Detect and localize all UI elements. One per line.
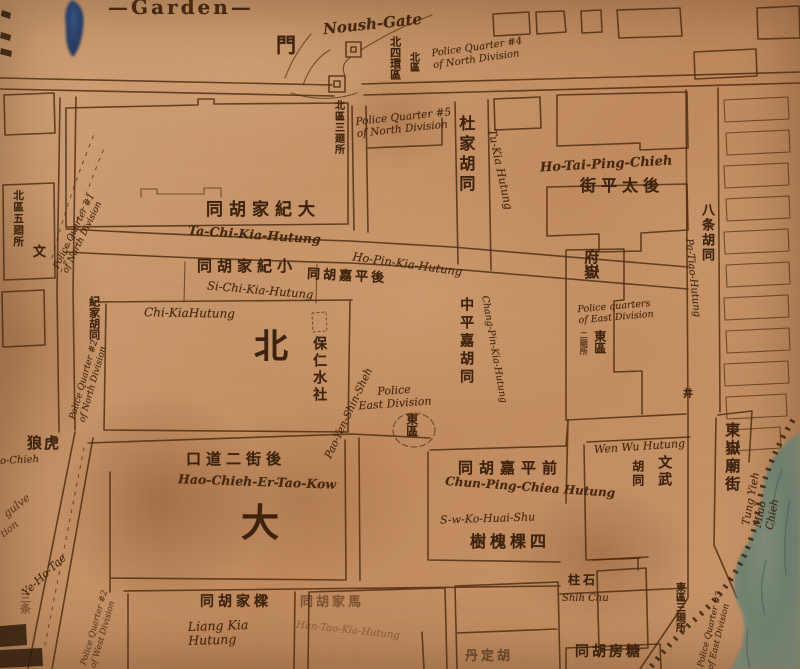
- label-chunping-cjk: 同胡嘉平前: [458, 460, 563, 477]
- label-faded-hutung-cjk: 同胡家馬: [300, 596, 364, 611]
- label-liangkia-hutung: Liang Kia Hutung: [188, 618, 250, 649]
- label-north-big-char: 北: [254, 328, 288, 367]
- label-sichi-cjk: 同胡家紀小: [197, 258, 297, 275]
- label-north-div-box: 北四環區: [388, 36, 401, 80]
- label-santiao-cjk: 三条: [18, 592, 31, 614]
- label-haochieh-cjk: 口道二街後: [186, 451, 286, 468]
- label-shihchu-cjk: 柱石: [568, 574, 598, 588]
- label-tangfang-cjk: 同胡房糖: [575, 644, 643, 660]
- label-shihchu: Shih Chu: [562, 593, 609, 605]
- street-network: [0, 0, 800, 669]
- label-paojen-cjk: 保仁水社: [311, 336, 327, 404]
- label-north-district-5: 北區五廻所: [12, 190, 24, 248]
- label-east-district-3: 東區三廻所: [673, 582, 685, 632]
- label-tungyieh-cjk: 東嶽廟街: [723, 422, 740, 494]
- label-liangkia-cjk: 同胡家樑: [200, 594, 272, 610]
- label-east-district-seal: 東區: [404, 413, 418, 437]
- label-east-district-2: 二廻所: [579, 331, 588, 355]
- label-fuyue-cjk: 府嶽: [582, 249, 599, 279]
- label-police-east-division: Police East Division: [357, 382, 432, 412]
- label-hotaiping-cjk: 街平太後: [580, 177, 664, 195]
- label-jing-mark: 井: [683, 389, 693, 401]
- ink-blot: [65, 0, 83, 57]
- label-tukia-hutung-cjk: 杜家胡同: [456, 115, 474, 195]
- label-patiao-hutung-cjk: 八条胡同: [698, 203, 713, 263]
- label-east-district: 東區: [592, 330, 606, 354]
- bottom-left-blocks: [0, 624, 43, 668]
- label-partial-cjk: 丹定胡: [465, 650, 513, 665]
- label-wen-char: 文: [33, 246, 46, 261]
- label-chikia-cjk: 紀家胡同: [87, 296, 100, 340]
- gate-marker: [329, 42, 361, 92]
- label-sikehuaishu-cjk: 樹槐棵四: [470, 533, 550, 551]
- label-garden: —Garden—: [108, 0, 254, 19]
- label-hochieh-fragment: o-Chieh: [0, 454, 39, 468]
- label-north-district: 北區: [407, 52, 419, 72]
- label-tachi-cjk: 同胡家紀大: [206, 201, 321, 221]
- antique-map: —Garden— Noush-Gate 門 Police Quarter #4 …: [0, 0, 800, 669]
- label-chungping-cjk: 中平嘉胡同: [458, 297, 474, 387]
- left-blocks: [2, 93, 55, 347]
- label-ta-big-char: 大: [241, 502, 279, 546]
- label-wenwu-cjk: 文武: [656, 455, 672, 489]
- right-row-blocks: [724, 97, 790, 451]
- label-men-gate-char: 門: [276, 34, 296, 57]
- label-langhu-cjk: 狼虎: [27, 435, 61, 452]
- top-right-blocks: [493, 6, 800, 79]
- label-north-district-3: 北區三廻所: [332, 100, 344, 155]
- label-chikia-hutung: Chi-KiaHutung: [144, 306, 235, 321]
- label-wenwu-hutung-cjk: 胡同: [630, 460, 644, 488]
